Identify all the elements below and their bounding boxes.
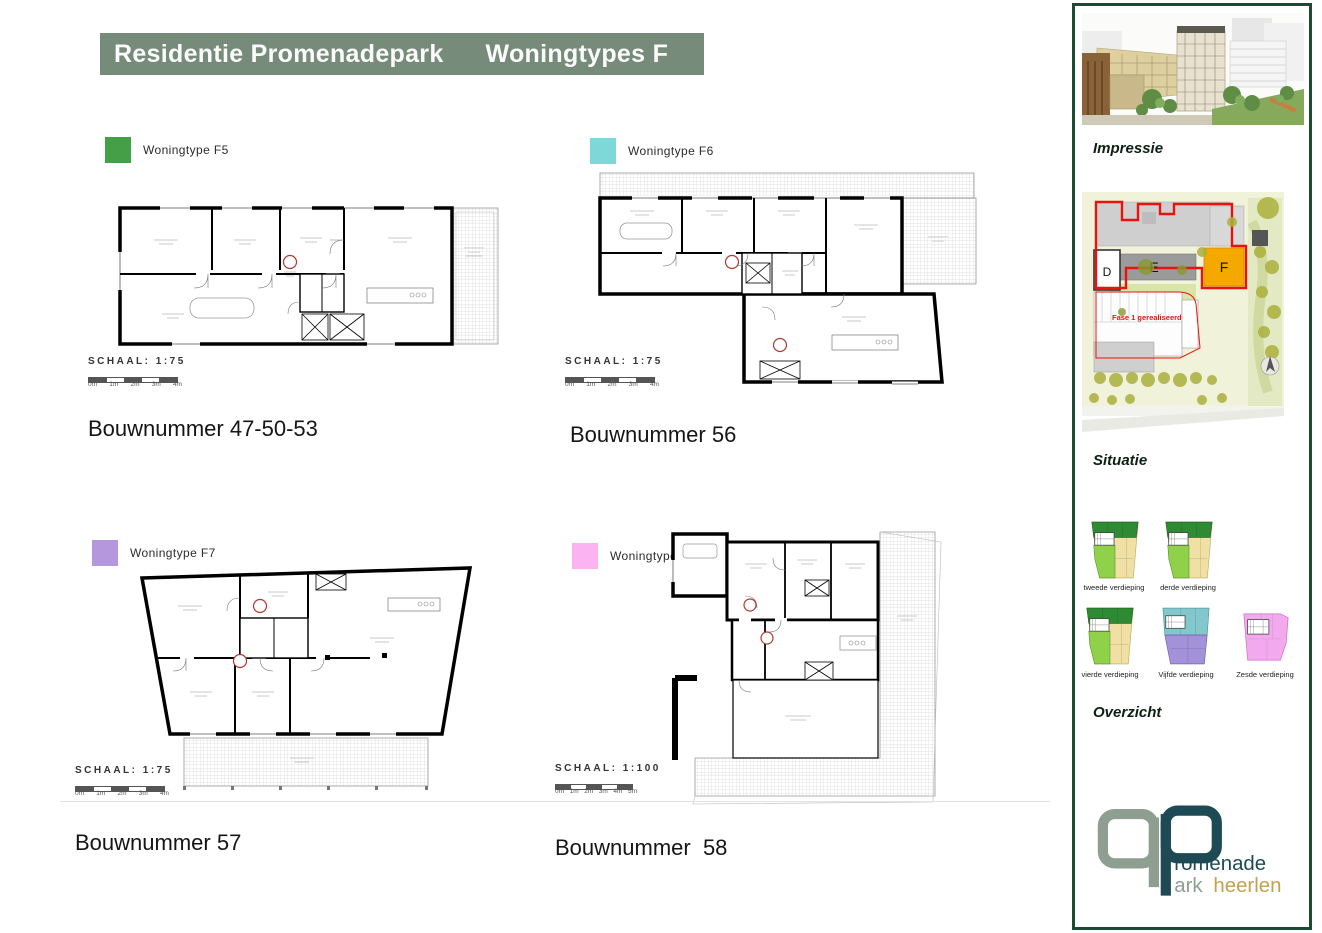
bouwnummer-f8: Bouwnummer 58 — [555, 835, 727, 861]
tick: 4m — [160, 790, 169, 797]
bouwnummer-f7: Bouwnummer 57 — [75, 830, 241, 856]
schaal-f5: SCHAAL: 1:75 — [88, 356, 186, 367]
promenadepark-logo: romenade ark heerlen — [1091, 798, 1295, 910]
logo-text-promenade: romenade — [1174, 853, 1266, 875]
impressie-label: Impressie — [1093, 140, 1163, 157]
floorplan-f8 — [635, 520, 967, 820]
plan-f8: Woningtype F8 — [555, 538, 990, 883]
scale-ticks-f7: 0m1m2m3m4m — [75, 790, 169, 797]
floor-label-zesde: Zesde verdieping — [1227, 670, 1303, 679]
plan-f5: Woningtype F5 — [85, 135, 510, 465]
legend-f6: Woningtype F6 — [590, 138, 714, 164]
schaal-f6: SCHAAL: 1:75 — [565, 356, 663, 367]
tick: 4m — [650, 381, 659, 388]
legend-label-f6: Woningtype F6 — [628, 144, 714, 158]
tick: 0m — [88, 381, 97, 388]
floorplan-f7 — [120, 558, 478, 806]
brochure-page: Residentie Promenadepark Woningtypes F W… — [0, 0, 1322, 933]
legend-label-f5: Woningtype F5 — [143, 143, 229, 157]
plan-f7: Woningtype F7 — [75, 538, 500, 878]
sidebar: Impressie D E F Fase 1 gerealiseerd — [1072, 3, 1312, 930]
page-title: Residentie Promenadepark Woningtypes F — [100, 33, 704, 75]
floor-thumb-zesde — [1237, 610, 1293, 664]
overzicht-label: Overzicht — [1093, 704, 1161, 721]
page-title-project: Residentie Promenadepark — [114, 40, 444, 69]
tick: 2m — [584, 788, 593, 795]
bouwnummer-f6: Bouwnummer 56 — [570, 422, 736, 448]
floor-thumb-tweede — [1088, 520, 1142, 580]
floor-thumb-vierde — [1083, 606, 1137, 666]
scale-ticks-f6: 0m1m2m3m4m — [565, 381, 659, 388]
schaal-f7: SCHAAL: 1:75 — [75, 765, 173, 776]
legend-swatch-f6 — [590, 138, 616, 164]
bouwnummer-f5: Bouwnummer 47-50-53 — [88, 416, 318, 442]
floor-label-vijfde: Vijfde verdieping — [1151, 670, 1221, 679]
floor-label-vierde: vierde verdieping — [1075, 670, 1145, 679]
legend-swatch-f8 — [572, 543, 598, 569]
impressie-image — [1082, 13, 1304, 125]
tick: 0m — [565, 381, 574, 388]
legend-swatch-f7 — [92, 540, 118, 566]
tick: 3m — [629, 381, 638, 388]
floor-thumb-derde — [1162, 520, 1216, 580]
situatie-building-f: F — [1220, 259, 1229, 275]
situatie-building-d: D — [1103, 265, 1112, 279]
tick: 0m — [75, 790, 84, 797]
tick: 1m — [109, 381, 118, 388]
tick: 4m — [173, 381, 182, 388]
tick: 1m — [586, 381, 595, 388]
tick: 5m — [628, 788, 637, 795]
situatie-map: D E F Fase 1 gerealiseerd — [1082, 192, 1284, 444]
legend-swatch-f5 — [105, 137, 131, 163]
plan-f6: Woningtype F6 — [565, 135, 995, 470]
scale-ticks-f8: 0m1m2m3m4m5m — [555, 788, 637, 795]
tick: 1m — [96, 790, 105, 797]
tick: 4m — [613, 788, 622, 795]
floor-label-tweede: tweede verdieping — [1079, 583, 1149, 592]
floor-label-derde: derde verdieping — [1155, 583, 1221, 592]
tick: 2m — [117, 790, 126, 797]
logo-text-park: ark — [1174, 875, 1203, 897]
legend-f5: Woningtype F5 — [105, 137, 229, 163]
tick: 0m — [555, 788, 564, 795]
section-divider — [60, 801, 1050, 802]
logo-text-heerlen: heerlen — [1213, 875, 1281, 897]
situatie-label: Situatie — [1093, 452, 1147, 469]
page-title-type: Woningtypes F — [486, 40, 669, 69]
tick: 2m — [130, 381, 139, 388]
tick: 3m — [599, 788, 608, 795]
schaal-f8: SCHAAL: 1:100 — [555, 763, 661, 774]
floor-thumb-vijfde — [1159, 606, 1213, 666]
scale-ticks-f5: 0m1m2m3m4m — [88, 381, 182, 388]
tick: 1m — [570, 788, 579, 795]
tick: 2m — [607, 381, 616, 388]
tick: 3m — [139, 790, 148, 797]
floorplan-f5 — [112, 192, 502, 360]
tick: 3m — [152, 381, 161, 388]
